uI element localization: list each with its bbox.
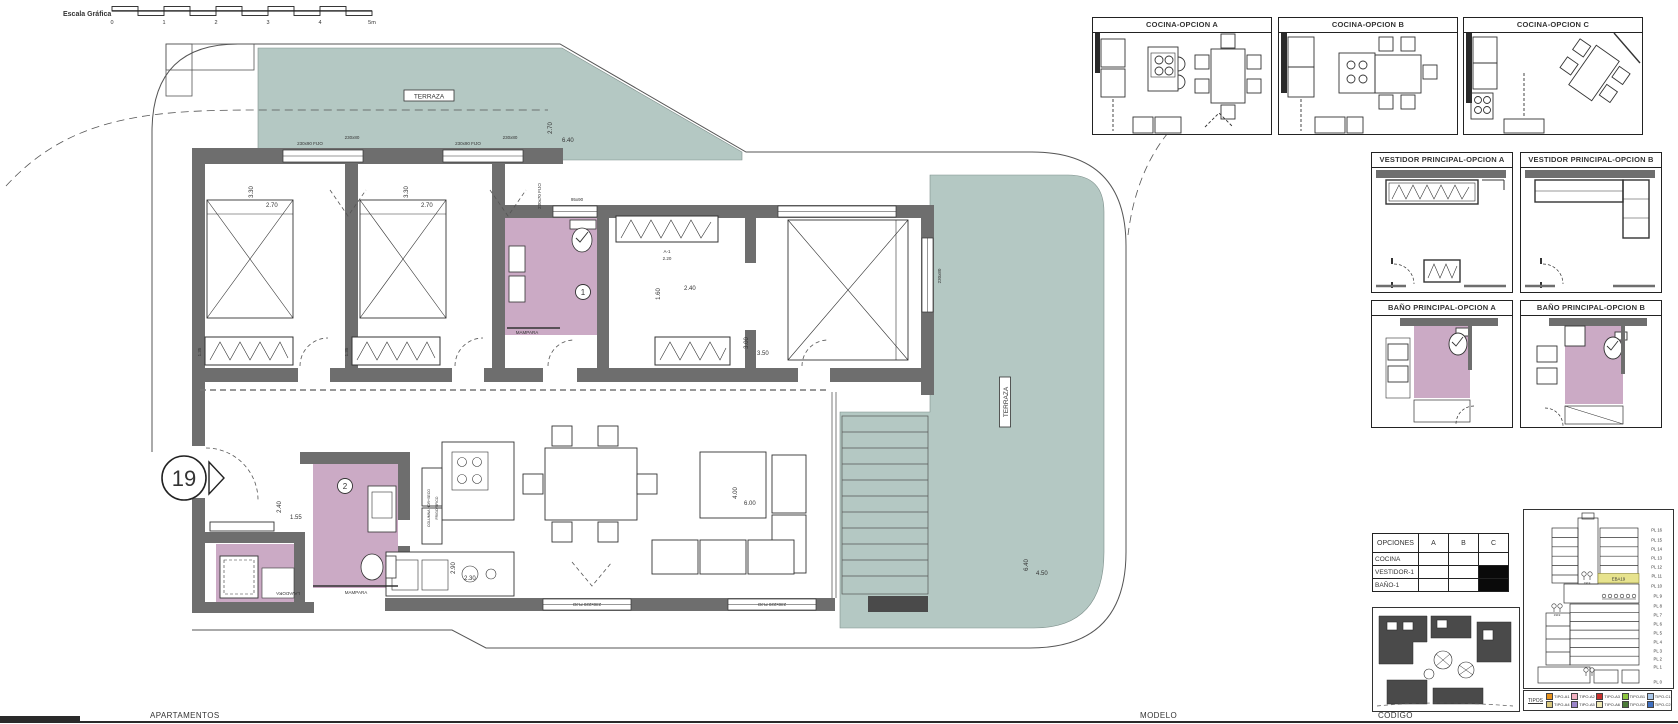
key-plan-drawing xyxy=(1373,608,1517,709)
floor-labels: PL 16 PL 15 PL 14 PL 13 PL 12 PL 11 PL 1… xyxy=(1651,528,1662,685)
frigorifico-label: FRIGORIFICO xyxy=(435,496,439,519)
tipo-label: TIPO-C2 xyxy=(1655,702,1671,707)
window-label: 230x80 xyxy=(345,135,360,140)
dim: 1.35 xyxy=(344,347,349,356)
terraza-right-label: TERRAZA xyxy=(1000,377,1011,427)
tipo-label: TIPO-C1 xyxy=(1655,694,1671,699)
window-label: 230x70 FIJO xyxy=(537,183,542,209)
scale-tick: 3 xyxy=(266,20,269,26)
option-cell-cocina-a xyxy=(1419,553,1449,566)
architectural-sheet: Escala Gráfica 0 1 2 3 4 5m xyxy=(0,0,1678,724)
option-cell-cocina-c xyxy=(1479,553,1509,566)
entry-arrow-icon xyxy=(209,462,224,494)
dim: 3.30 xyxy=(249,186,255,198)
legend-item: TIPO-C2 xyxy=(1647,701,1671,709)
cocina-c-plan xyxy=(1464,33,1642,135)
svg-text:PL 16: PL 16 xyxy=(1651,528,1662,533)
a1-code: A-1 xyxy=(663,249,671,254)
option-cell-bano-b xyxy=(1449,579,1479,592)
dim: 2.70 xyxy=(266,203,278,209)
unit-code-label: EBA19 xyxy=(1612,577,1626,582)
dining-table xyxy=(523,426,657,542)
tipo-label: TIPO-A3 xyxy=(1604,694,1620,699)
option-cell-vestidor-a xyxy=(1419,566,1449,579)
panel-title: VESTIDOR PRINCIPAL-OPCION A xyxy=(1372,153,1512,168)
legend-item: TIPO-A4 xyxy=(1546,701,1570,709)
tipo-label: TIPO-A4 xyxy=(1554,702,1570,707)
tipo-label: TIPO-A2 xyxy=(1579,694,1595,699)
svg-text:PL 15: PL 15 xyxy=(1651,538,1662,543)
svg-text:PL 10: PL 10 xyxy=(1651,584,1662,589)
table-row: BAÑO-1 xyxy=(1373,579,1509,592)
svg-text:PL 2: PL 2 xyxy=(1654,657,1663,662)
footer-modelo: MODELO xyxy=(1140,711,1177,720)
dim: 2.40 xyxy=(684,286,696,292)
option-cell-vestidor-c xyxy=(1479,566,1509,579)
tipo-label: TIPO-B2 xyxy=(1630,702,1646,707)
dim: 1.55 xyxy=(290,515,302,521)
dim: 6.40 xyxy=(562,138,574,144)
bed-1 xyxy=(207,200,293,318)
legend-item: TIPO-B2 xyxy=(1622,701,1646,709)
mampara-label: MAMPARA xyxy=(345,590,367,595)
tipo-color-swatch xyxy=(1622,693,1629,700)
tipo-label: TIPO-A1 xyxy=(1554,694,1570,699)
svg-text:TERRAZA: TERRAZA xyxy=(414,94,445,101)
sofa xyxy=(652,452,806,574)
svg-text:PL 6: PL 6 xyxy=(1654,622,1663,627)
elevation-drawing: EBA19 1919 1919 PL 16 PL 15 PL 14 PL 13 … xyxy=(1524,510,1671,686)
panel-bano-option-a: BAÑO PRINCIPAL-OPCION A xyxy=(1371,300,1513,428)
svg-text:PL 7: PL 7 xyxy=(1654,613,1663,618)
tipo-color-swatch xyxy=(1571,701,1578,708)
footer-apartamentos: APARTAMENTOS xyxy=(150,711,220,720)
scale-tick: 1 xyxy=(162,20,165,26)
tipo-color-swatch xyxy=(1546,701,1553,708)
options-table-header: OPCIONES A B C xyxy=(1373,534,1509,553)
panel-cocina-option-a: COCINA-OPCION A xyxy=(1092,17,1272,135)
wardrobe-bed1 xyxy=(205,337,293,365)
scale-tick: 2 xyxy=(214,20,217,26)
wardrobe-hall xyxy=(655,337,730,365)
tipo-color-swatch xyxy=(1596,693,1603,700)
tipos-label: TIPOS xyxy=(1528,698,1543,704)
legend-item: TIPO-A2 xyxy=(1571,693,1595,701)
bano-b-plan xyxy=(1521,316,1660,428)
columna-label: COLUMNA HOR+SECO xyxy=(427,489,431,527)
glyph-code: 1919 xyxy=(1584,581,1591,585)
svg-text:PL 1: PL 1 xyxy=(1654,665,1663,670)
panel-title: VESTIDOR PRINCIPAL-OPCION B xyxy=(1521,153,1661,168)
tipos-chips: TIPO-A1 TIPO-A2 TIPO-A3 TIPO-B1 TIPO-C1 … xyxy=(1546,693,1671,709)
window-label: 230x90 FIJO xyxy=(455,141,481,146)
tipo-label: TIPO-A5 xyxy=(1579,702,1595,707)
dim: 2.40 xyxy=(277,501,283,513)
dim: 2.70 xyxy=(421,203,433,209)
panel-cocina-option-c: COCINA-OPCION C xyxy=(1463,17,1643,135)
lavadora-label: LAVADORA xyxy=(276,591,300,596)
header-opciones: OPCIONES xyxy=(1373,534,1419,553)
legend-item: TIPO-C1 xyxy=(1647,693,1671,701)
table-row: VESTIDOR-1 xyxy=(1373,566,1509,579)
mampara-label: MAMPARA xyxy=(516,330,538,335)
bano-a-plan xyxy=(1372,316,1511,428)
dim: 6.40 xyxy=(1024,559,1030,571)
svg-text:PL 14: PL 14 xyxy=(1651,547,1662,552)
legend-item: TIPO-B1 xyxy=(1622,693,1646,701)
key-plan xyxy=(1372,607,1520,712)
header-c: C xyxy=(1479,534,1509,553)
vestidor-a-plan xyxy=(1372,168,1511,293)
apartment-entry-marker: 19 xyxy=(162,456,224,500)
svg-text:PL 5: PL 5 xyxy=(1654,631,1663,636)
row-label-vestidor: VESTIDOR-1 xyxy=(1373,566,1419,579)
legend-item: TIPO-A1 xyxy=(1546,693,1570,701)
wardrobe-corridor-a1 xyxy=(616,216,718,242)
svg-text:PL 8: PL 8 xyxy=(1654,604,1663,609)
svg-text:PL 4: PL 4 xyxy=(1654,640,1663,645)
window-label: 230x80 xyxy=(937,268,942,283)
legend-item: TIPO-A6 xyxy=(1596,701,1620,709)
options-table: OPCIONES A B C COCINA VESTIDOR-1 BAÑO-1 xyxy=(1372,533,1509,592)
dim: 2.70 xyxy=(548,122,554,134)
svg-text:TERRAZA: TERRAZA xyxy=(1003,386,1010,417)
cocina-b-plan xyxy=(1279,33,1457,135)
scale-tick: 5m xyxy=(368,20,376,26)
tipos-legend: TIPOS TIPO-A1 TIPO-A2 TIPO-A3 TIPO-B1 TI… xyxy=(1523,690,1672,711)
legend-item: TIPO-A3 xyxy=(1596,693,1620,701)
bath2-number: 2 xyxy=(343,482,348,491)
scale-bar-label: Escala Gráfica xyxy=(63,11,111,18)
legend-item: TIPO-A5 xyxy=(1571,701,1595,709)
panel-title: COCINA-OPCION C xyxy=(1464,18,1642,33)
row-label-cocina: COCINA xyxy=(1373,553,1419,566)
panel-cocina-option-b: COCINA-OPCION B xyxy=(1278,17,1458,135)
terraza-top-label: TERRAZA xyxy=(404,90,454,101)
option-cell-bano-a xyxy=(1419,579,1449,592)
tipo-color-swatch xyxy=(1622,701,1629,708)
master-bed xyxy=(788,220,908,360)
scale-tick: 4 xyxy=(318,20,321,26)
svg-text:PL 0: PL 0 xyxy=(1654,680,1663,685)
bath1-number: 1 xyxy=(581,288,586,297)
dim: 6.00 xyxy=(744,501,756,507)
panel-title: BAÑO PRINCIPAL-OPCION A xyxy=(1372,301,1512,316)
kitchen-columns xyxy=(422,468,442,544)
option-cell-vestidor-b xyxy=(1449,566,1479,579)
dim: 4.50 xyxy=(1036,571,1048,577)
vestidor-b-plan xyxy=(1521,168,1660,293)
dim: 1.35 xyxy=(197,347,202,356)
window-label: 230x220 FIJO xyxy=(757,602,786,607)
dim: 2.90 xyxy=(451,562,457,574)
tipo-color-swatch xyxy=(1571,693,1578,700)
dim: 4.00 xyxy=(733,487,739,499)
kitchen-island xyxy=(442,442,514,520)
tipo-label: TIPO-A6 xyxy=(1604,702,1620,707)
dim: 3.50 xyxy=(757,351,769,357)
tipo-color-swatch xyxy=(1546,693,1553,700)
option-cell-cocina-b xyxy=(1449,553,1479,566)
dim: 1.60 xyxy=(656,288,662,300)
header-a: A xyxy=(1419,534,1449,553)
tipo-color-swatch xyxy=(1647,701,1654,708)
a1-dim: 2.20 xyxy=(663,256,672,261)
scale-tick: 0 xyxy=(110,20,113,26)
panel-vestidor-option-a: VESTIDOR PRINCIPAL-OPCION A xyxy=(1371,152,1513,293)
header-b: B xyxy=(1449,534,1479,553)
svg-text:PL 11: PL 11 xyxy=(1652,574,1663,579)
tipo-color-swatch xyxy=(1647,693,1654,700)
option-cell-bano-c xyxy=(1479,579,1509,592)
row-label-bano: BAÑO-1 xyxy=(1373,579,1419,592)
svg-text:PL 9: PL 9 xyxy=(1654,594,1663,599)
entry-console xyxy=(210,522,274,531)
tipo-label: TIPO-B1 xyxy=(1630,694,1646,699)
window-label: 230x220 FIJO xyxy=(572,602,601,607)
wardrobe-bed2 xyxy=(352,337,440,365)
panel-vestidor-option-b: VESTIDOR PRINCIPAL-OPCION B xyxy=(1520,152,1662,293)
svg-text:PL 3: PL 3 xyxy=(1654,649,1663,654)
dim: 3.30 xyxy=(404,186,410,198)
svg-text:PL 12: PL 12 xyxy=(1651,565,1662,570)
scale-bar: Escala Gráfica 0 1 2 3 4 5m xyxy=(63,7,376,27)
dim: 2.30 xyxy=(464,576,476,582)
glyph-code: 1919 xyxy=(1554,613,1561,617)
kitchen-counter xyxy=(386,552,514,596)
apartment-number: 19 xyxy=(172,466,196,491)
svg-text:PL 13: PL 13 xyxy=(1651,556,1662,561)
panel-bano-option-b: BAÑO PRINCIPAL-OPCION B xyxy=(1520,300,1662,428)
balcony-glyphs xyxy=(1552,572,1636,676)
building-elevation: EBA19 1919 1919 PL 16 PL 15 PL 14 PL 13 … xyxy=(1523,509,1674,689)
tipo-color-swatch xyxy=(1596,701,1603,708)
cocina-a-plan xyxy=(1093,33,1271,135)
window-label: 95x90 xyxy=(571,197,584,202)
panel-title: COCINA-OPCION B xyxy=(1279,18,1457,33)
window-label: 230x80 xyxy=(503,135,518,140)
dim: 3.00 xyxy=(744,337,750,349)
table-row: COCINA xyxy=(1373,553,1509,566)
panel-title: COCINA-OPCION A xyxy=(1093,18,1271,33)
window-label: 230x90 FIJO xyxy=(297,141,323,146)
bed-2 xyxy=(360,200,446,318)
terrace-top xyxy=(258,48,742,160)
panel-title: BAÑO PRINCIPAL-OPCION B xyxy=(1521,301,1661,316)
